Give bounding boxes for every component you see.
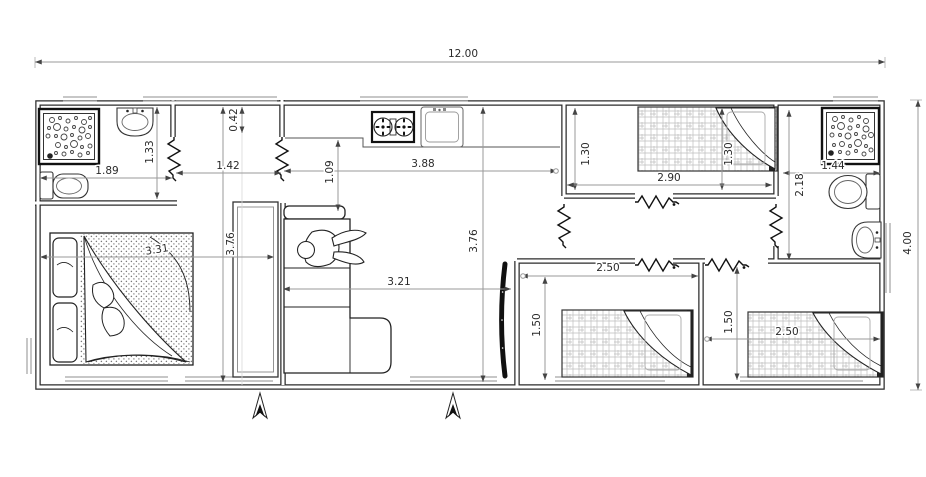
door-break-icon <box>770 204 782 248</box>
toilet-icon <box>40 172 88 199</box>
washbasin-icon <box>117 108 153 136</box>
north-arrow-icon <box>446 393 460 418</box>
bathroom-1 <box>39 108 153 199</box>
dim-hall-width: 1.42 <box>216 160 239 172</box>
washbasin-icon <box>852 222 881 258</box>
door-break-icon <box>635 259 679 271</box>
dim-total-width: 12.00 <box>448 48 478 60</box>
dim-bath2-depth: 2.18 <box>794 173 806 196</box>
window-band <box>27 338 31 374</box>
dim-bedroom2-depth-left: 1.30 <box>580 142 592 165</box>
dim-total-depth: 4.00 <box>902 231 914 254</box>
shower-icon <box>822 108 879 164</box>
dim-bedroom4-depth: 1.50 <box>723 310 735 333</box>
north-arrow-icon <box>253 393 267 418</box>
dim-bedroom3-depth: 1.50 <box>531 313 543 336</box>
shower-drain <box>47 153 53 159</box>
double-bed-icon <box>50 233 193 365</box>
door-break-icon <box>558 204 570 248</box>
window-band <box>740 377 863 381</box>
dim-bedroom2-depth-right: 1.30 <box>723 142 735 165</box>
dim-bath2-width: 1.44 <box>821 160 845 172</box>
floor-plan-page: 12.00 4.00 1.89 1.33 0.42 1.42 1.09 3.88… <box>0 0 926 477</box>
floor-plan-canvas: 12.00 4.00 1.89 1.33 0.42 1.42 1.09 3.88… <box>0 0 926 477</box>
door-break-icon <box>705 259 749 271</box>
bedroom-4 <box>748 312 883 377</box>
dim-living-depth: 3.76 <box>468 229 480 253</box>
tv-icon <box>501 264 505 376</box>
toilet-icon <box>829 174 880 209</box>
bathroom-2 <box>822 108 881 258</box>
dim-bath1-depth: 1.33 <box>144 140 156 163</box>
dim-bath1-width: 1.89 <box>95 165 118 177</box>
window-band <box>555 377 665 381</box>
window-band <box>410 377 497 381</box>
door-break-icon <box>168 137 180 181</box>
window-band <box>65 377 168 381</box>
door-break-icon <box>635 196 679 208</box>
dim-bedroom2-width: 2.90 <box>657 172 680 184</box>
single-bed-icon <box>748 312 883 377</box>
window-band <box>886 223 890 293</box>
bedroom-3 <box>562 310 693 377</box>
dim-bedroom3-width: 2.50 <box>596 262 619 274</box>
bedroom-1 <box>50 202 278 377</box>
cooktop-icon <box>372 112 414 142</box>
dim-kitchen-counter-offset: 1.09 <box>324 160 336 183</box>
dim-bedroom1-depth: 3.76 <box>225 232 237 256</box>
kitchen-sink-icon <box>421 107 463 147</box>
single-bed-icon <box>638 107 777 171</box>
wardrobe-icon <box>233 202 278 377</box>
dim-living-width: 3.21 <box>387 276 410 288</box>
dim-entry-offset: 0.42 <box>228 108 240 131</box>
bedroom-2 <box>638 107 777 171</box>
kitchen <box>285 107 560 147</box>
shower-drain <box>828 150 834 156</box>
dim-kitchen-width: 3.88 <box>411 158 434 170</box>
door-break-icon <box>276 137 288 181</box>
dim-bedroom4-width: 2.50 <box>775 326 798 338</box>
shower-icon <box>39 109 99 164</box>
single-bed-icon <box>562 310 693 377</box>
